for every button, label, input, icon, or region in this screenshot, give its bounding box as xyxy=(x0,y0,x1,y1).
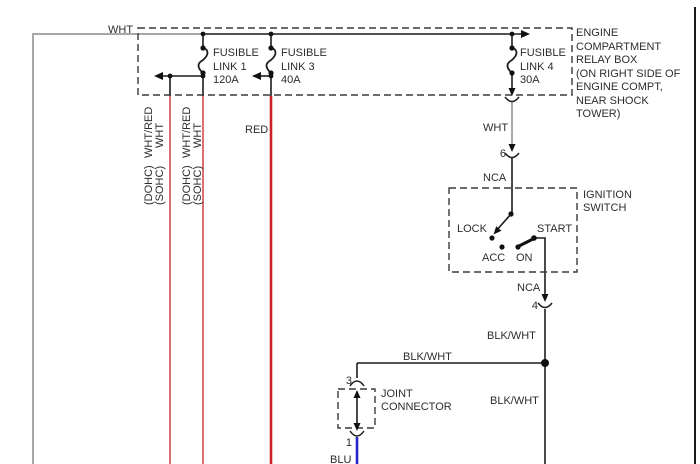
ignition-switch: IGNITION SWITCH LOCK START ACC ON xyxy=(449,188,632,272)
arrow-left-icon xyxy=(154,72,163,80)
junction-dot xyxy=(269,74,274,79)
wht-wire-left xyxy=(33,34,203,464)
svg-text:NEAR SHOCK: NEAR SHOCK xyxy=(576,95,649,107)
junction-dot xyxy=(201,74,206,79)
blkwht-label-lower: BLK/WHT xyxy=(490,395,539,407)
connector-pin-number: 6 xyxy=(500,148,506,160)
svg-text:30A: 30A xyxy=(520,74,540,86)
red-label: RED xyxy=(245,124,268,136)
branch-wire-labels-2: WHT/RED WHT (DOHC) (SOHC) xyxy=(181,107,204,205)
connector-cup-down-icon xyxy=(350,381,364,386)
connector-pin-number: 4 xyxy=(532,300,538,312)
relay-box-label: ENGINE xyxy=(576,27,618,39)
lock-terminal xyxy=(489,235,494,240)
switch-contact-bar xyxy=(519,239,533,246)
svg-text:FUSIBLE: FUSIBLE xyxy=(520,47,566,59)
junction-dot xyxy=(201,32,206,37)
svg-text:LINK 3: LINK 3 xyxy=(281,61,315,73)
wire-labels: WHT RED WHT NCA NCA BLK/WHT BLK/WHT BLK/… xyxy=(108,24,541,464)
arrow-up-icon xyxy=(354,390,361,398)
nca-label-lower: NCA xyxy=(517,282,541,294)
position-lock-label: LOCK xyxy=(457,223,488,235)
svg-text:SWITCH: SWITCH xyxy=(583,202,626,214)
connector-pin-number: 3 xyxy=(346,375,352,387)
connector-cup-icon xyxy=(350,431,364,436)
nca-label-upper: NCA xyxy=(483,172,507,184)
svg-text:40A: 40A xyxy=(281,74,301,86)
connector-cup-icon xyxy=(505,153,519,158)
blkwht-label-upper: BLK/WHT xyxy=(487,330,536,342)
arrow-right-icon xyxy=(521,30,530,38)
blkwht-label-horizontal: BLK/WHT xyxy=(403,351,452,363)
joint-connector-label: JOINT xyxy=(381,388,413,400)
wiring-diagram: ENGINE COMPARTMENT RELAY BOX (ON RIGHT S… xyxy=(0,0,700,464)
wiper-arrow-icon xyxy=(494,226,502,234)
connector-cup-icon xyxy=(505,97,519,102)
position-acc-label: ACC xyxy=(482,252,505,264)
junction-dot xyxy=(168,74,173,79)
fuse-icon xyxy=(508,47,517,73)
junction-dot xyxy=(269,32,274,37)
sohc-label: (SOHC) xyxy=(154,166,166,205)
connector-cup-icon xyxy=(538,303,552,308)
acc-terminal xyxy=(499,244,504,249)
svg-text:COMPARTMENT: COMPARTMENT xyxy=(576,41,661,53)
joint-connector: 3 1 JOINT CONNECTOR xyxy=(338,375,452,449)
wht-label-top: WHT xyxy=(108,24,133,36)
connector-pin-number: 1 xyxy=(346,437,352,449)
svg-text:FUSIBLE: FUSIBLE xyxy=(281,47,327,59)
inline-connector-4: 4 xyxy=(532,294,552,312)
wht-sohc-label: WHT xyxy=(154,123,166,148)
wiring-diagram-page: ENGINE COMPARTMENT RELAY BOX (ON RIGHT S… xyxy=(0,0,700,464)
wht-sohc-label: WHT xyxy=(192,123,204,148)
wht-feed-wire xyxy=(33,34,512,464)
fusible-link-1: FUSIBLE LINK 1 120A xyxy=(168,32,259,86)
svg-text:(ON RIGHT SIDE OF: (ON RIGHT SIDE OF xyxy=(576,68,681,80)
svg-text:TOWER): TOWER) xyxy=(576,108,620,120)
sohc-label: (SOHC) xyxy=(192,166,204,205)
fuse-icon xyxy=(199,47,208,73)
svg-text:RELAY BOX: RELAY BOX xyxy=(576,54,638,66)
svg-text:120A: 120A xyxy=(213,74,239,86)
svg-text:FUSIBLE: FUSIBLE xyxy=(213,47,259,59)
branch-wire-labels-1: WHT/RED WHT (DOHC) (SOHC) xyxy=(143,107,166,205)
arrow-left-icon xyxy=(252,72,261,80)
fusible-link-3: FUSIBLE LINK 3 40A xyxy=(267,32,327,86)
position-start-label: START xyxy=(537,223,572,235)
arrow-down-icon xyxy=(509,144,516,152)
svg-text:CONNECTOR: CONNECTOR xyxy=(381,401,452,413)
blkwht-junction-dot xyxy=(541,359,549,367)
junction-dot xyxy=(510,32,515,37)
position-on-label: ON xyxy=(516,252,533,264)
wht-label-mid: WHT xyxy=(483,122,508,134)
svg-text:ENGINE COMPT,: ENGINE COMPT, xyxy=(576,81,663,93)
inline-connector-6: 6 xyxy=(500,144,519,160)
arrow-down-icon xyxy=(542,294,549,302)
blu-label: BLU xyxy=(330,454,351,464)
ignition-switch-label: IGNITION xyxy=(583,189,632,201)
svg-text:LINK 1: LINK 1 xyxy=(213,61,247,73)
svg-text:LINK 4: LINK 4 xyxy=(520,61,554,73)
arrow-down-icon xyxy=(354,423,361,431)
fusible-link-4: FUSIBLE LINK 4 30A xyxy=(508,32,566,86)
fuse-icon xyxy=(267,47,276,73)
